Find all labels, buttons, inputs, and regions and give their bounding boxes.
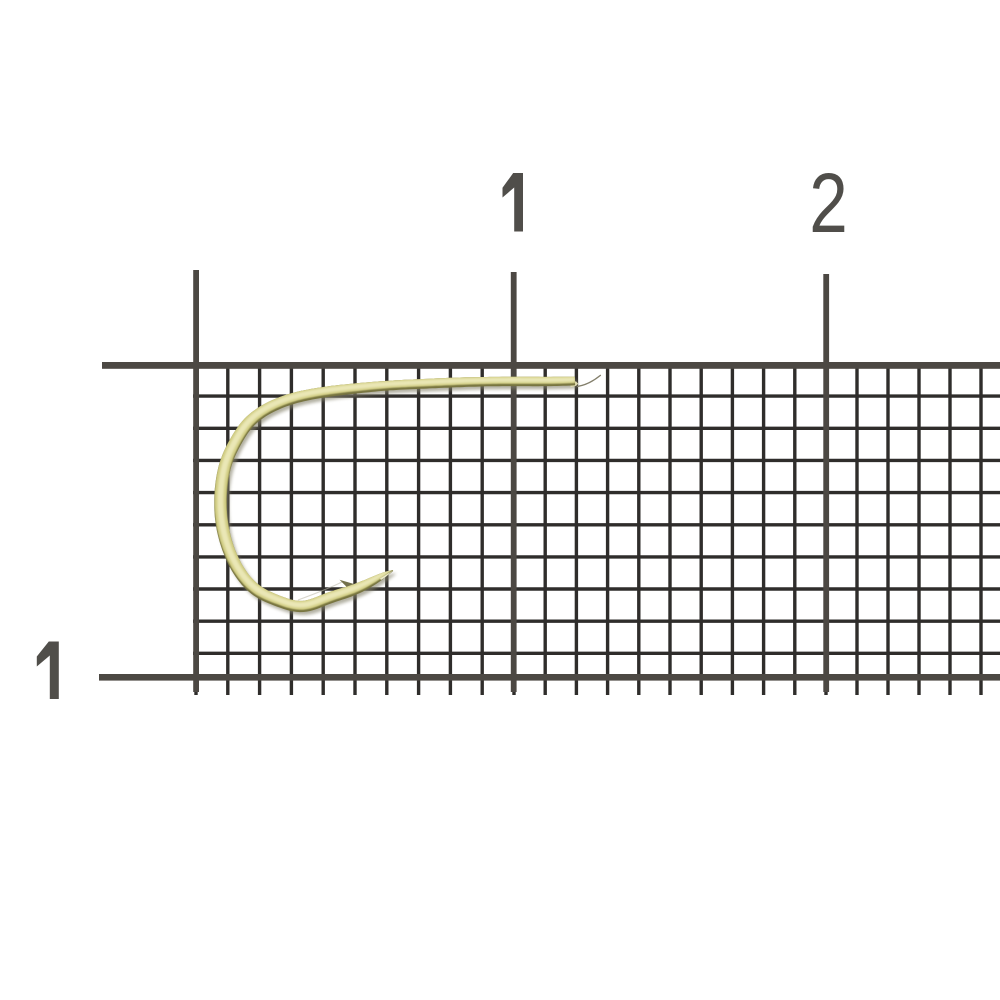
svg-text:2: 2 xyxy=(809,156,848,250)
